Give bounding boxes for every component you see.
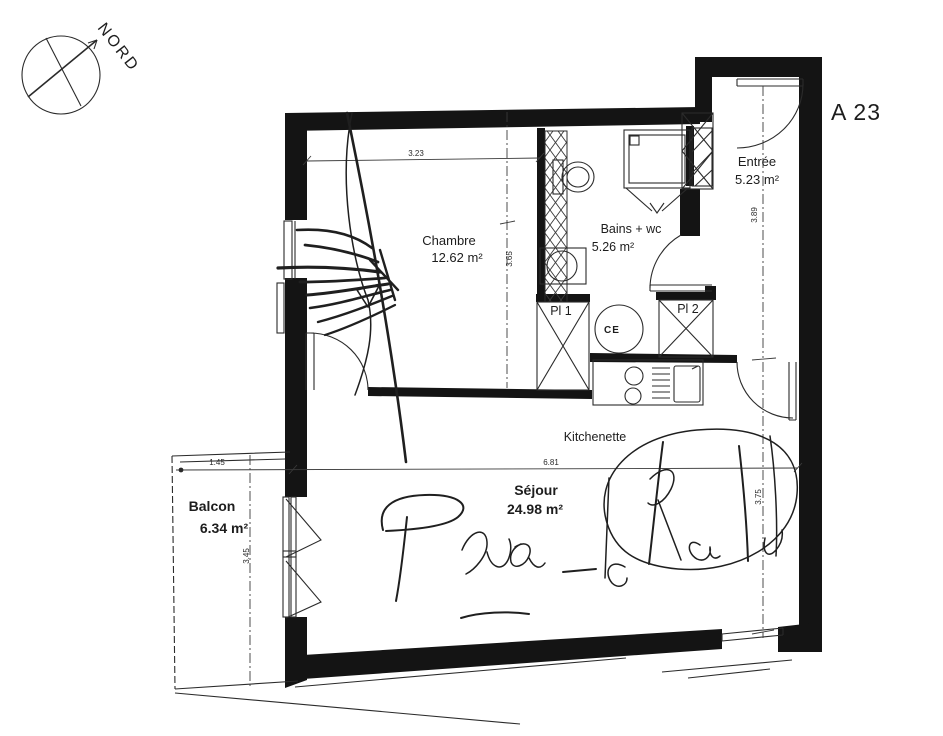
dim-chambre-width: 3.23	[408, 149, 424, 158]
balcony-bottom-edge	[175, 681, 298, 689]
kitchenette-counter-icon	[593, 360, 703, 405]
room-label-sejour: Séjour	[514, 482, 558, 498]
wall-entree-stub	[680, 189, 700, 236]
floor-plan-sheet: NORD A 23	[0, 0, 943, 736]
chambre-window	[284, 221, 292, 279]
wall-kitchenette	[590, 353, 737, 363]
duct-diagonal-hatch	[692, 131, 712, 186]
bains-door-arc	[650, 235, 681, 288]
balcony-top-edge	[172, 452, 290, 462]
room-label-balcon: Balcon	[189, 498, 236, 514]
wall-right	[799, 77, 822, 650]
room-area-sejour: 24.98 m²	[507, 501, 563, 517]
entry-door-arc	[737, 84, 803, 148]
sejour-door-arc	[737, 362, 793, 418]
sill-window	[277, 283, 284, 333]
dim-sejour-width: 6.81	[543, 458, 559, 467]
signature-sejour	[382, 495, 627, 618]
wall-bottom	[303, 629, 722, 679]
bains-door-leaf	[650, 285, 712, 291]
room-area-balcon: 6.34 m²	[200, 520, 249, 536]
duct-crosshatch	[545, 131, 567, 302]
dim-dot	[179, 468, 184, 473]
wall-corner-br	[778, 622, 822, 652]
room-area-entree: 5.23 m²	[735, 172, 780, 187]
unit-label: A 23	[831, 99, 881, 125]
compass-cross-line	[46, 38, 81, 106]
balcony-left-edge	[172, 456, 175, 689]
dim-chambre-depth: 3.65	[505, 251, 514, 267]
dimension-lines: 3.23 3.65 3.89 3.75 3.45 1.45 6.81	[176, 86, 802, 686]
water-heater-label: CE	[604, 325, 620, 336]
windows	[277, 221, 783, 641]
north-label: NORD	[94, 20, 143, 75]
dim-entree-depth: 3.89	[750, 207, 759, 223]
wall-corner-bl	[285, 617, 307, 688]
closet-label-pl2: Pl 2	[677, 302, 699, 316]
dim-balcon-width: 1.45	[209, 458, 225, 467]
closet-label-pl1: Pl 1	[550, 304, 572, 318]
sejour-door-leaf	[789, 362, 796, 420]
signature-paraph	[604, 429, 797, 578]
room-label-chambre: Chambre	[422, 233, 475, 248]
wall-shaft-left	[537, 128, 545, 302]
sill-lines-right	[662, 660, 792, 678]
shower-icon	[624, 130, 690, 188]
compass-needle-icon	[28, 40, 97, 97]
north-compass: NORD	[22, 20, 142, 114]
room-area-chambre: 12.62 m²	[431, 250, 483, 265]
wall-left-upper	[285, 113, 307, 220]
entry-door-leaf	[737, 79, 803, 86]
chambre-door-leaf	[306, 333, 314, 390]
room-label-kitchenette: Kitchenette	[564, 430, 627, 444]
shower-door-icon	[626, 188, 688, 213]
floor-plan-drawing: NORD A 23	[0, 0, 943, 736]
room-label-entree: Entrée	[738, 154, 776, 169]
balcony-outline	[172, 452, 792, 724]
wall-chambre-sejour	[368, 387, 592, 399]
dim-sejour-depth: 3.75	[754, 489, 763, 505]
wall-left-mid	[285, 278, 307, 497]
dim-balcon-depth: 3.45	[242, 548, 251, 564]
room-area-bains: 5.26 m²	[592, 240, 634, 254]
room-label-bains: Bains + wc	[601, 222, 662, 236]
ground-line-left	[175, 693, 520, 724]
